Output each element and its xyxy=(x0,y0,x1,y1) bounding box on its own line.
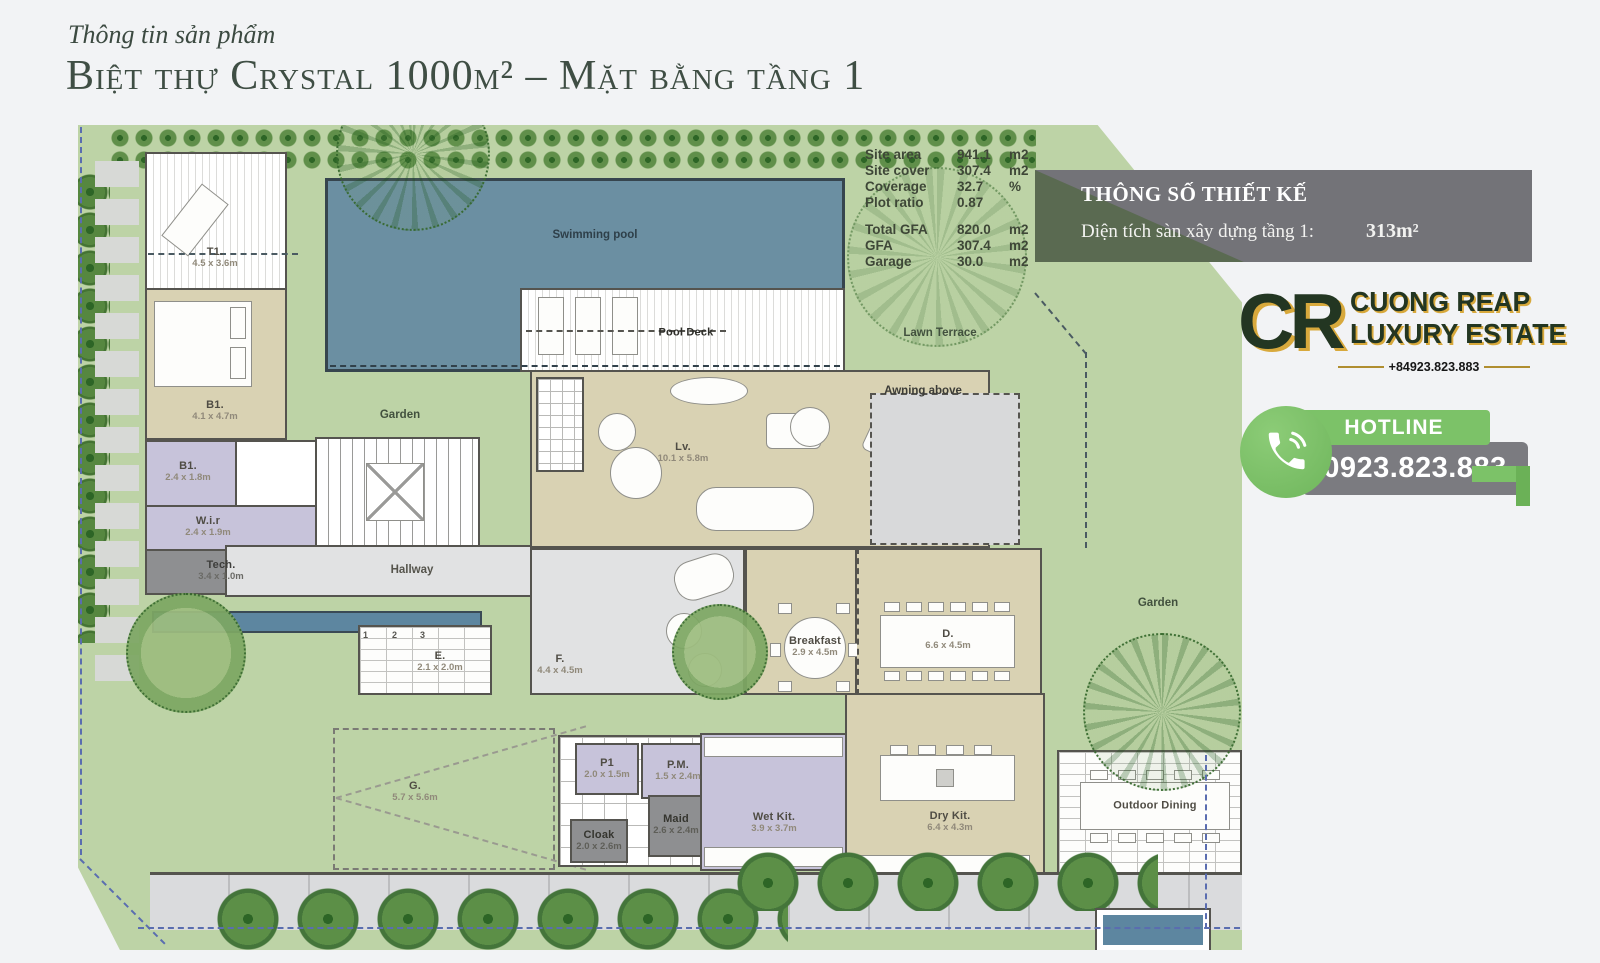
garden-label: Garden xyxy=(1138,597,1178,609)
green-notch xyxy=(1516,466,1530,506)
room-label-lv: Lv.10.1 x 5.8m xyxy=(658,441,709,465)
chair xyxy=(972,602,988,612)
chair xyxy=(778,603,792,614)
sectional-sofa xyxy=(696,487,814,531)
water-feature-pool xyxy=(1103,915,1203,945)
chair xyxy=(884,602,900,612)
stat-row: Site area941.1m2 xyxy=(865,147,1039,163)
room-label-bath: B1.2.4 x 1.8m xyxy=(165,460,210,484)
pillow xyxy=(230,307,246,339)
chair xyxy=(972,671,988,681)
tree-icon xyxy=(1083,633,1241,791)
stool xyxy=(946,745,964,755)
floor-area-value: 313m² xyxy=(1366,220,1419,243)
stool xyxy=(918,745,936,755)
phone-handset-icon xyxy=(1263,429,1309,475)
chair xyxy=(994,671,1010,681)
brand-phone-row: +84923.823.883 xyxy=(1338,360,1530,374)
hotline-number-bar[interactable]: 0923.823.883 xyxy=(1302,442,1528,495)
chair xyxy=(1118,833,1136,843)
flyer-canvas: Thông tin sản phẩm Biệt thự Crystal 1000… xyxy=(0,0,1600,963)
tree-row xyxy=(728,851,1158,911)
boundary-line xyxy=(1034,292,1087,355)
chair xyxy=(906,602,922,612)
chair xyxy=(950,602,966,612)
brand-name-line2: LUXURY ESTATE xyxy=(1350,318,1566,350)
stool xyxy=(974,745,992,755)
room-label-f: F.4.4 x 4.5m xyxy=(537,653,582,677)
gold-rule xyxy=(1484,366,1530,368)
pool-dash-line xyxy=(330,365,840,367)
boundary-line xyxy=(138,927,1250,929)
boundary-line xyxy=(80,127,82,855)
lawn-terrace-label: Lawn Terrace xyxy=(903,327,976,339)
tree-icon xyxy=(672,604,768,700)
chair xyxy=(928,602,944,612)
swimming-pool-label: Swimming pool xyxy=(553,229,638,241)
room-label-pm: P.M.1.5 x 2.4m xyxy=(655,759,700,783)
chair xyxy=(770,643,781,657)
room-label-e: E.2.1 x 2.0m xyxy=(417,650,462,674)
site-statistics: Site area941.1m2 Site cover307.4m2 Cover… xyxy=(865,147,1039,270)
page-eyebrow: Thông tin sản phẩm xyxy=(68,20,275,50)
coffee-table xyxy=(610,447,662,499)
room-label-b1: B1.4.1 x 4.7m xyxy=(192,399,237,423)
cooktop xyxy=(936,769,954,787)
chair xyxy=(994,602,1010,612)
pillow xyxy=(230,347,246,379)
awning-label: Awning above xyxy=(884,385,962,397)
chair xyxy=(836,603,850,614)
hallway xyxy=(225,545,537,597)
stat-row: Coverage32.7% xyxy=(865,179,1039,195)
awning-area xyxy=(870,393,1020,545)
chair xyxy=(1146,833,1164,843)
page-title: Biệt thự Crystal 1000m² – Mặt bằng tầng … xyxy=(66,52,865,100)
chair xyxy=(906,671,922,681)
stepping-stones xyxy=(95,161,139,691)
tree-row xyxy=(208,887,788,951)
design-spec-title: THÔNG SỐ THIẾT KẾ xyxy=(1081,182,1308,207)
tree-icon xyxy=(126,593,246,713)
chair xyxy=(836,681,850,692)
boundary-line xyxy=(1205,755,1207,929)
room-label-dry-kit: Dry Kit.6.4 x 4.3m xyxy=(927,810,972,834)
gold-rule xyxy=(1338,366,1384,368)
parking-number: 1 xyxy=(363,630,368,640)
garden-label: Garden xyxy=(380,409,420,421)
tree-icon xyxy=(336,77,490,231)
chair xyxy=(1090,833,1108,843)
pool-lounger xyxy=(612,297,638,355)
outdoor-dining-label: Outdoor Dining xyxy=(1113,800,1196,813)
stat-row: Total GFA820.0m2 xyxy=(865,222,1039,238)
parking-number: 2 xyxy=(392,630,397,640)
stool xyxy=(890,745,908,755)
room-label-wir: W.i.r2.4 x 1.9m xyxy=(185,515,230,539)
armchair xyxy=(790,407,830,447)
hotline-badge: 0923.823.883 HOTLINE xyxy=(1240,406,1530,502)
chair xyxy=(950,671,966,681)
armchair xyxy=(598,413,636,451)
stat-row: Site cover307.4m2 xyxy=(865,163,1039,179)
chair xyxy=(1090,770,1108,780)
hotline-label: HOTLINE xyxy=(1344,416,1443,440)
room-label-cloak: Cloak2.0 x 2.6m xyxy=(576,829,621,853)
room-label-t1: T1.4.5 x 3.6m xyxy=(192,246,237,270)
design-spec-subtitle: Diện tích sàn xây dựng tầng 1: 313m² xyxy=(1081,220,1419,243)
garage-outline xyxy=(333,728,555,870)
brand-name-line1: CUONG REAP xyxy=(1350,286,1530,318)
parking-number: 3 xyxy=(420,630,425,640)
brand-logo: CR CUONG REAP LUXURY ESTATE +84923.823.8… xyxy=(1238,286,1530,386)
pool-lounger xyxy=(575,297,601,355)
room-label-tech: Tech.3.4 x 1.0m xyxy=(198,559,243,583)
room-label-wet-kit: Wet Kit.3.9 x 3.7m xyxy=(751,811,796,835)
fan xyxy=(670,377,748,405)
room-label-g: G.5.7 x 5.6m xyxy=(392,780,437,804)
chair xyxy=(928,671,944,681)
pool-lounger xyxy=(538,297,564,355)
stat-row: Plot ratio0.87 xyxy=(865,195,1039,211)
hallway-label: Hallway xyxy=(391,564,434,576)
chair xyxy=(778,681,792,692)
room-label-d: D.6.6 x 4.5m xyxy=(925,628,970,652)
stat-row: Garage30.0m2 xyxy=(865,254,1039,270)
pool-deck-label: Pool Deck xyxy=(659,327,714,340)
room-label-maid: Maid2.6 x 2.4m xyxy=(653,813,698,837)
boundary-line xyxy=(1085,352,1087,548)
brand-initials: CR xyxy=(1238,282,1341,360)
stat-row: GFA307.4m2 xyxy=(865,238,1039,254)
stair-landing xyxy=(366,463,424,521)
chair xyxy=(1174,833,1192,843)
room-label-p1: P12.0 x 1.5m xyxy=(584,757,629,781)
chair xyxy=(884,671,900,681)
phone-icon xyxy=(1240,406,1332,498)
room-label-breakfast: Breakfast2.9 x 4.5m xyxy=(789,635,841,659)
design-spec-box: THÔNG SỐ THIẾT KẾ Diện tích sàn xây dựng… xyxy=(1035,170,1532,262)
shelving xyxy=(536,377,584,472)
counter xyxy=(704,737,843,757)
